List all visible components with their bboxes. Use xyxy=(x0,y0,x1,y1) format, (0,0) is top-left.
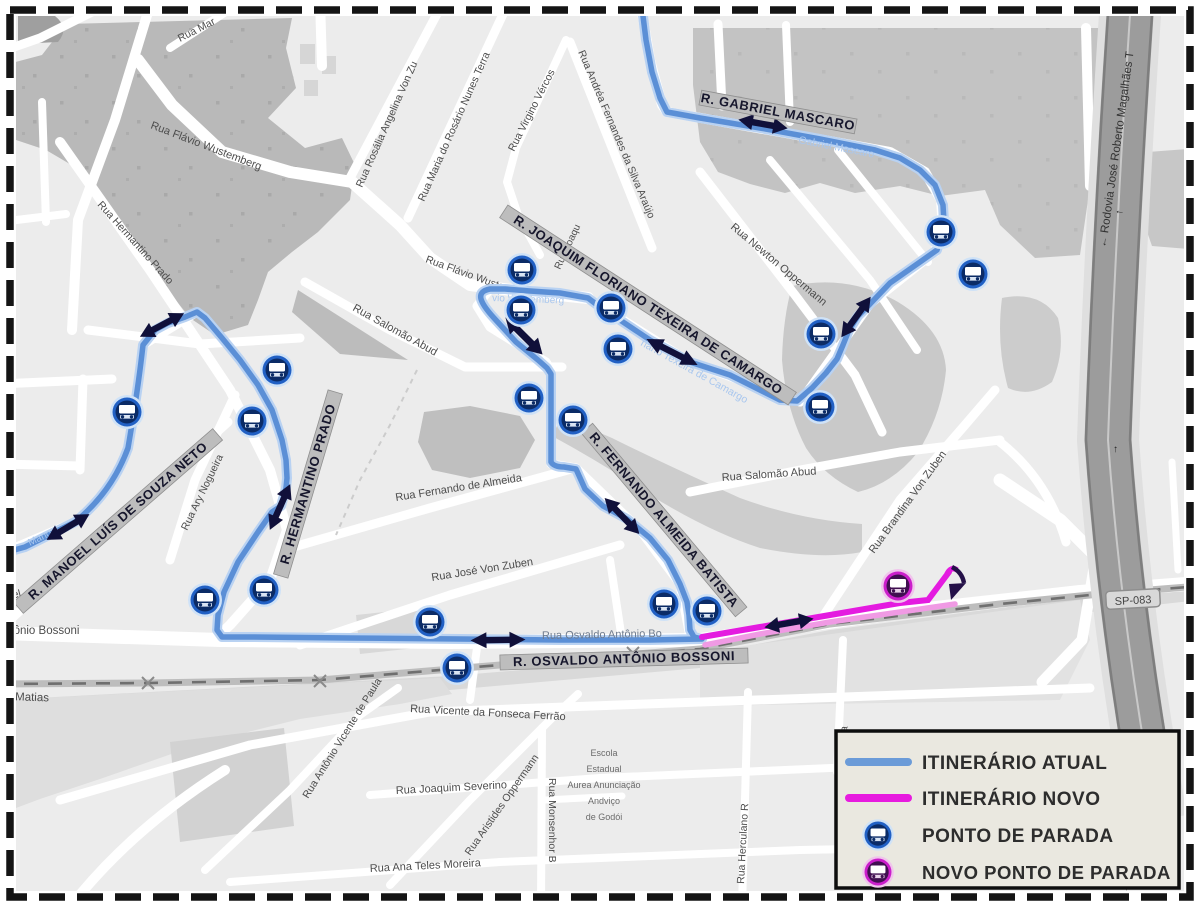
svg-text:Rua Osvaldo Antônio Bo: Rua Osvaldo Antônio Bo xyxy=(542,628,662,642)
svg-text:↑: ↑ xyxy=(1113,444,1118,455)
svg-text:Rua Monsenhor B: Rua Monsenhor B xyxy=(546,778,558,863)
svg-text:PONTO DE PARADA: PONTO DE PARADA xyxy=(922,826,1114,847)
svg-text:Escola: Escola xyxy=(590,748,617,758)
svg-text:ITINERÁRIO NOVO: ITINERÁRIO NOVO xyxy=(922,788,1101,810)
svg-text:Aurea Anunciação: Aurea Anunciação xyxy=(567,780,640,790)
svg-text:Andviço: Andviço xyxy=(588,796,620,806)
svg-text:NOVO PONTO DE PARADA: NOVO PONTO DE PARADA xyxy=(922,862,1171,883)
svg-text:ITINERÁRIO ATUAL: ITINERÁRIO ATUAL xyxy=(922,752,1107,774)
svg-text:de Godói: de Godói xyxy=(586,812,623,822)
svg-text:SP-083: SP-083 xyxy=(1114,594,1151,608)
svg-text:Estadual: Estadual xyxy=(586,764,621,774)
